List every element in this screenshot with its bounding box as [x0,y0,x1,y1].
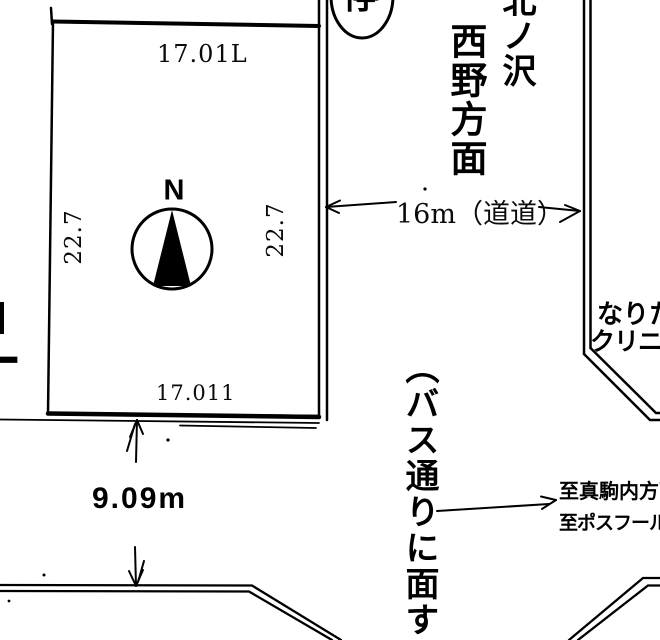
corner-tick [51,8,52,24]
destination-label-posful: 至ポスフール方面 [559,508,660,535]
parcel-dimension-top: 17.01L [157,40,248,68]
frontage-dimension-label: 9.09m [92,482,187,516]
frontage-arrow-down [129,547,144,586]
southeast-road-edge [569,578,660,640]
clipped-stroke-fragment [0,302,4,334]
clinic-label-line2: クリニック [590,322,660,358]
clipped-kanji-fragment: 丁 [0,334,20,418]
parcel-dimension-right: 22.7 [263,202,289,257]
scanned-plot-map: { "plot": { "dim_top": "17.01L", "dim_bo… [0,0,660,640]
compass-north-label: N [164,175,185,208]
destination-arrow [437,497,556,512]
road-width-label: 16m（道道） [396,192,564,231]
parcel-dimension-bottom: 17.011 [156,381,235,405]
map-linework [0,0,660,640]
bus-street-south-edge [0,585,341,640]
destination-label-makomanai: 至真駒内方面 [559,475,660,504]
parcel-dimension-left: 22.7 [61,209,87,264]
road-width-arrow-left [326,201,396,214]
frontage-arrow-up [127,420,143,462]
direction-label-nishino: 西野方面 [438,22,492,178]
direction-label-kitanosawa: 北ノ沢 [492,0,541,88]
bus-street-label: （バス通りに面す [395,350,444,638]
bus-street-north-edge [0,420,319,429]
bus-stop-label: 停 [343,0,380,19]
compass-north-icon [132,209,212,289]
